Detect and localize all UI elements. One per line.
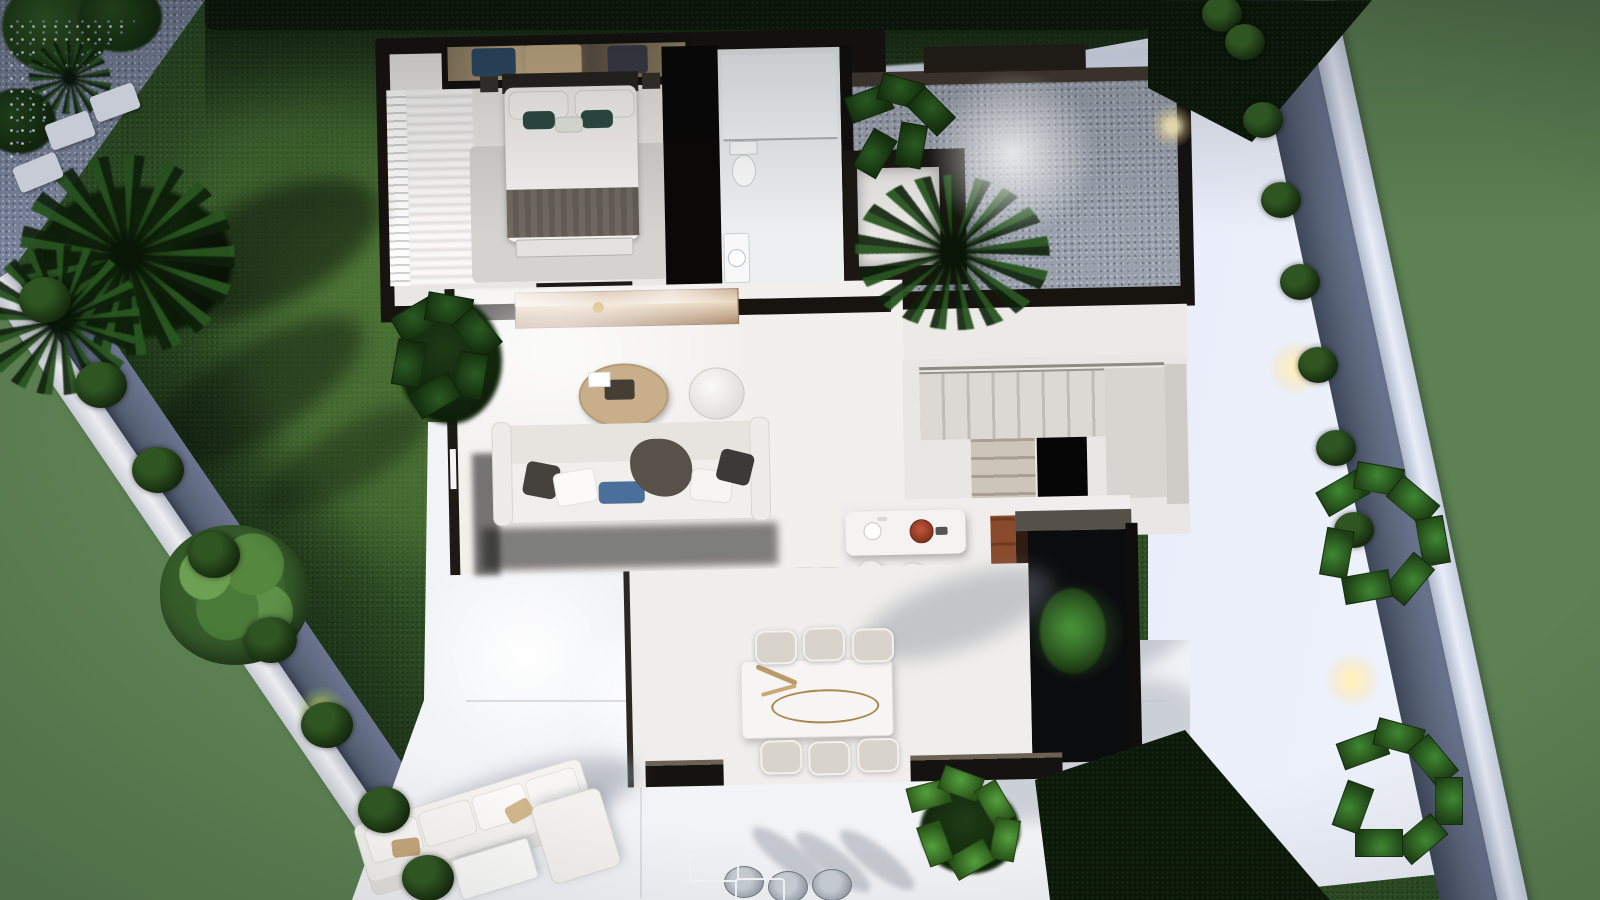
clothes-tan [525, 44, 582, 75]
window-light-streaks [406, 89, 476, 286]
box-hedge [358, 787, 410, 833]
outdoor-chair [812, 869, 852, 900]
clothes-dark [607, 45, 648, 74]
box-hedge [188, 532, 240, 578]
toilet-tank [729, 141, 757, 156]
box-hedge [75, 362, 127, 408]
box-hedge [245, 617, 297, 663]
stairs-upper-flight [919, 368, 1105, 440]
patio-wall-top [1015, 509, 1131, 531]
box-hedge [1261, 182, 1301, 218]
small-pillow [555, 116, 583, 133]
table-book [588, 372, 610, 387]
dining-chair [755, 630, 798, 665]
box-hedge [1243, 102, 1283, 138]
stair-side-wall [1164, 364, 1189, 504]
teal-pillow [581, 110, 613, 129]
dining-chair [803, 627, 846, 662]
hedge-top [205, 0, 1155, 30]
floorplan-render [0, 0, 1600, 900]
sofa-cushion [417, 798, 479, 848]
box-hedge [301, 702, 353, 748]
dining-chair [857, 738, 900, 773]
nightstand [642, 73, 660, 89]
leaf-plant [1355, 829, 1403, 857]
dining-chair [760, 740, 803, 775]
path-light [1150, 104, 1194, 148]
island-item [935, 527, 947, 535]
box-hedge [132, 447, 184, 493]
path-light [1324, 652, 1380, 708]
outdoor-wire-table [735, 878, 785, 900]
faucet [877, 517, 887, 521]
bed-throw-blanket [506, 187, 639, 238]
box-hedge [1298, 347, 1338, 383]
shower [722, 53, 838, 141]
dining-chair [808, 741, 851, 776]
nightstand [480, 76, 498, 92]
sofa-shadow [481, 522, 778, 570]
box-hedge [1316, 430, 1356, 466]
sofa-arm [749, 416, 771, 520]
bottom-wall-segment [910, 752, 1063, 781]
box-hedge [1225, 24, 1265, 60]
box-hedge [1280, 264, 1320, 300]
outdoor-wire-table [689, 854, 739, 882]
leaf-plant [1435, 777, 1463, 825]
teal-pillow [523, 111, 555, 130]
courtyard-light-bloom [928, 68, 1098, 238]
box-hedge [402, 855, 454, 900]
stair-landing [1104, 367, 1167, 498]
closet-wall [661, 45, 722, 298]
bed-bench [515, 237, 633, 257]
clothes-blue [471, 48, 516, 77]
bottom-wall-segment [645, 759, 724, 787]
box-hedge [19, 277, 71, 323]
dining-chair [852, 628, 895, 663]
sofa-arm [491, 422, 513, 526]
wicker-pillow [391, 837, 421, 858]
glass-mullion [450, 449, 457, 489]
